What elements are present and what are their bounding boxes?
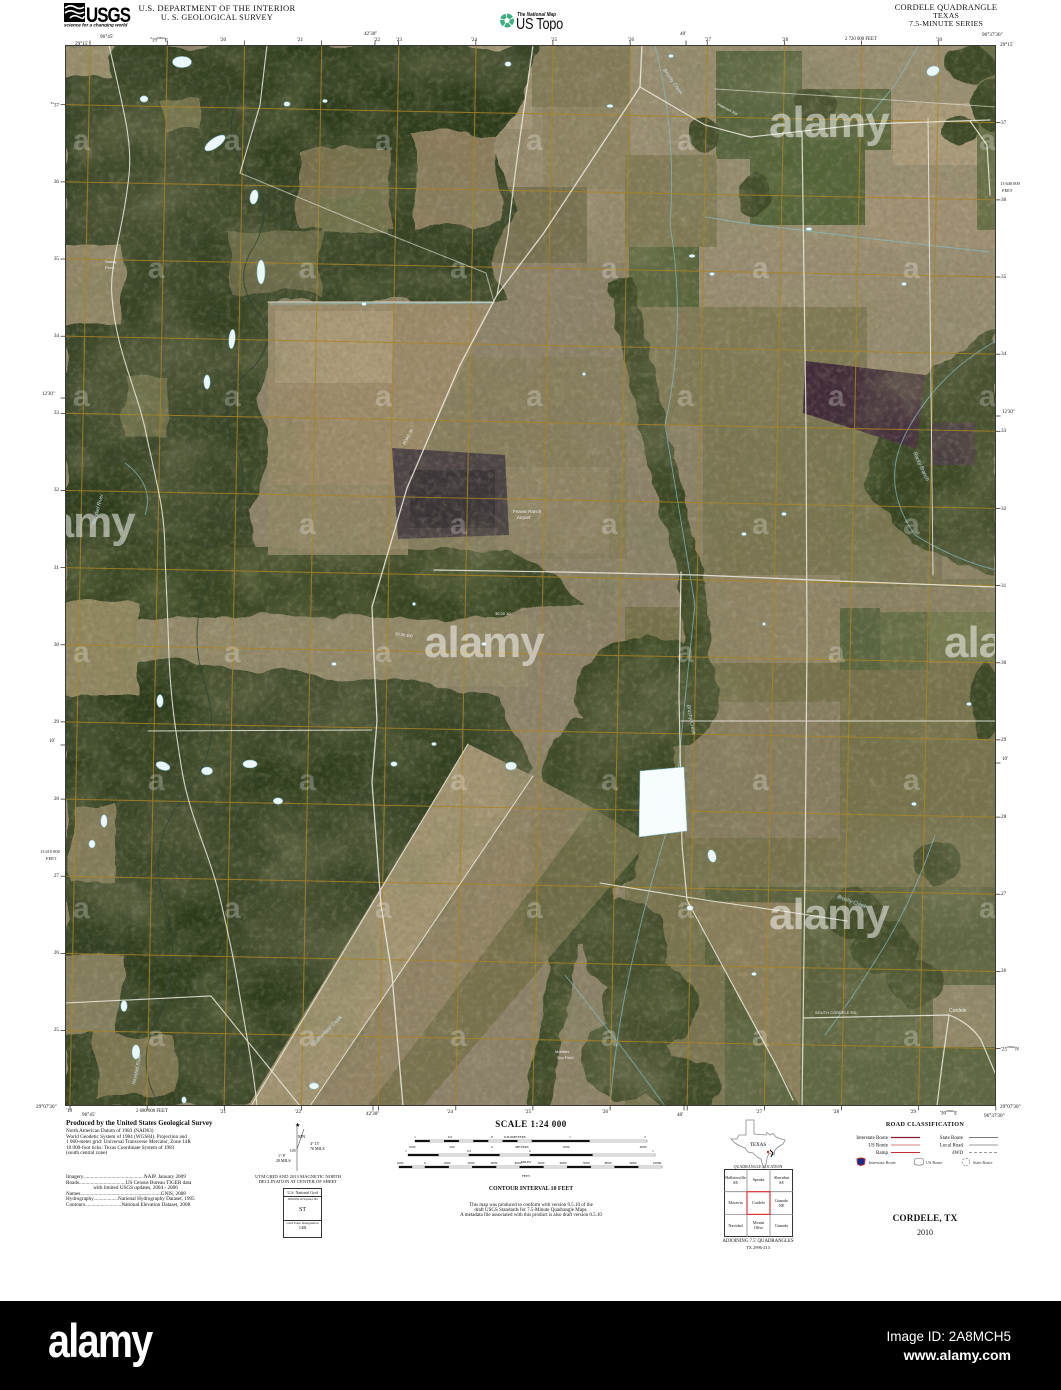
svg-text:KILOMETERS: KILOMETERS: [504, 1135, 526, 1139]
svg-text:Moravia: Moravia: [728, 1200, 742, 1205]
svg-text:METERS: METERS: [515, 1145, 528, 1149]
svg-text:500: 500: [449, 1145, 454, 1149]
svg-text:4WD: 4WD: [952, 1151, 963, 1156]
svg-text:9000: 9000: [630, 1161, 637, 1165]
svg-text:★: ★: [295, 1122, 300, 1129]
svg-text:SE: SE: [733, 1180, 738, 1185]
svg-text:10000: 10000: [653, 1161, 662, 1165]
svg-text:Cordele: Cordele: [752, 1200, 765, 1205]
svg-text:1: 1: [414, 1135, 416, 1139]
svg-text:8000: 8000: [605, 1161, 612, 1165]
svg-text:SE: SE: [779, 1180, 784, 1185]
svg-text:Local Road: Local Road: [940, 1144, 964, 1149]
svg-text:7000: 7000: [583, 1161, 590, 1165]
svg-text:2: 2: [644, 1135, 646, 1139]
svg-text:MN: MN: [298, 1134, 306, 1139]
svg-text:76 MILS: 76 MILS: [310, 1146, 325, 1151]
svg-text:State Route: State Route: [940, 1136, 964, 1141]
svg-text:1000: 1000: [397, 1161, 404, 1165]
svg-text:0.5: 0.5: [467, 1149, 472, 1153]
svg-text:Speaks: Speaks: [753, 1177, 765, 1182]
svg-text:MILES: MILES: [521, 1160, 531, 1164]
svg-text:FEET: FEET: [522, 1174, 531, 1178]
svg-text:1000: 1000: [563, 1145, 570, 1149]
svg-text:Olive: Olive: [754, 1225, 763, 1230]
svg-text:NE: NE: [779, 1203, 785, 1208]
svg-text:Navidad: Navidad: [728, 1223, 743, 1228]
svg-text:1: 1: [652, 1149, 654, 1153]
svg-text:1000: 1000: [444, 1161, 451, 1165]
svg-text:1: 1: [569, 1135, 571, 1139]
svg-text:3000: 3000: [491, 1161, 498, 1165]
svg-text:0: 0: [491, 1145, 493, 1149]
svg-text:6000: 6000: [560, 1161, 567, 1165]
svg-text:0: 0: [424, 1161, 426, 1165]
svg-text:2000: 2000: [468, 1161, 475, 1165]
svg-text:0.5: 0.5: [448, 1135, 453, 1139]
svg-text:Ganado: Ganado: [775, 1223, 788, 1228]
svg-text:Interstate Route: Interstate Route: [856, 1136, 889, 1141]
svg-text:2000: 2000: [640, 1145, 647, 1149]
svg-text:5000: 5000: [538, 1161, 545, 1165]
svg-text:0: 0: [491, 1135, 493, 1139]
svg-text:1000: 1000: [409, 1145, 416, 1149]
svg-text:1: 1: [405, 1149, 407, 1153]
svg-text:State Route: State Route: [973, 1160, 993, 1165]
svg-text:Interstate Route: Interstate Route: [869, 1160, 896, 1165]
svg-text:0: 0: [529, 1149, 531, 1153]
svg-text:Ramp: Ramp: [876, 1151, 888, 1156]
svg-text:20 MILS: 20 MILS: [276, 1158, 291, 1163]
svg-text:US Route: US Route: [868, 1144, 888, 1149]
svg-text:GN: GN: [290, 1148, 296, 1153]
svg-text:4000: 4000: [515, 1161, 522, 1165]
svg-text:TEXAS: TEXAS: [750, 1143, 766, 1148]
svg-text:US Route: US Route: [926, 1160, 943, 1165]
